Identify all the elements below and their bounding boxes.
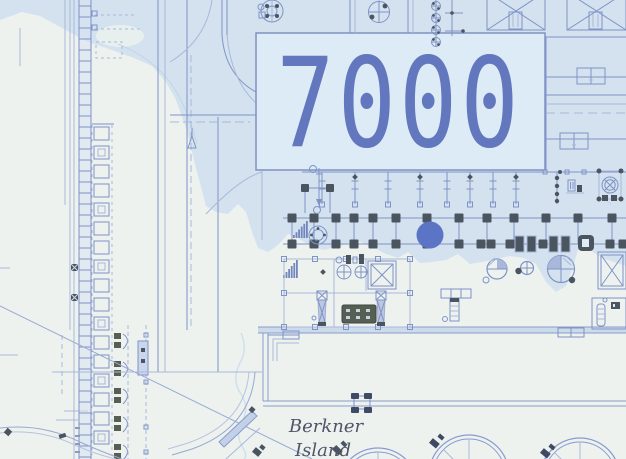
pipe-rack-post [510, 214, 519, 223]
pipe-rack-post [455, 240, 464, 249]
rack-unit [527, 236, 536, 252]
pipe-rack-post [350, 214, 359, 223]
flange-dot [437, 31, 440, 34]
pipe-rack-post [332, 240, 341, 249]
pipe-rack-post [455, 214, 464, 223]
flange-dot [437, 19, 440, 22]
pipe-rack-post [487, 240, 496, 249]
pipe-rack-post [392, 240, 401, 249]
rack-unit [561, 236, 570, 252]
pipe-rack-post [423, 214, 432, 223]
flange-dot [437, 43, 440, 46]
pipe-rack-post [477, 240, 486, 249]
pipe-rack-post [619, 240, 626, 249]
stair-bar [298, 229, 300, 238]
grid-label-box: 7000 [256, 32, 545, 176]
pipe-rack-post [483, 214, 492, 223]
loading-tower-icon [138, 341, 148, 375]
stair-bar [286, 272, 288, 278]
mooring-bollard [114, 444, 121, 450]
pipe-rack-post [606, 240, 615, 249]
rack-unit [549, 236, 558, 252]
pipe-rack-post [574, 214, 583, 223]
vessel-marker [417, 222, 444, 249]
mooring-bollard [114, 333, 121, 339]
place-name-line2: Island [294, 440, 351, 459]
pipe-rack-post [608, 214, 617, 223]
flange-dot [437, 7, 440, 10]
pipe-rack-post [539, 240, 548, 249]
flange-dot [432, 14, 435, 17]
stud-block [342, 305, 376, 323]
place-name-line1: Berkner [288, 416, 365, 437]
rack-unit [515, 236, 524, 252]
stair-bar [291, 266, 293, 278]
shoal-patch [96, 25, 144, 47]
pipe-rack-post [332, 214, 341, 223]
mooring-bollard [114, 397, 121, 403]
pipe-rack-post [392, 214, 401, 223]
pipe-rack-post [369, 214, 378, 223]
stair-bar [301, 227, 303, 238]
site-plan: 7000 [0, 0, 626, 459]
stair-bar [288, 269, 290, 278]
mooring-bollard [114, 342, 121, 348]
stair-bar [306, 221, 308, 238]
stair-bar [293, 263, 295, 278]
flange-dot [432, 2, 435, 5]
map-canvas[interactable]: 7000 [0, 0, 626, 459]
mooring-bollard [114, 425, 121, 431]
pipe-rack-post [369, 240, 378, 249]
grid-label: 7000 [276, 32, 522, 176]
pipe-rack-post [288, 240, 297, 249]
stair-bar [293, 235, 295, 238]
stair-bar [296, 232, 298, 238]
mooring-bollard [114, 416, 121, 422]
mooring-bollard [114, 388, 121, 394]
stair-bar [296, 260, 298, 278]
pipe-rack-post [288, 214, 297, 223]
pipe-rack-post [350, 240, 359, 249]
stair-bar [303, 224, 305, 238]
flange-dot [432, 26, 435, 29]
round-tank [548, 256, 576, 284]
mooring-bollard [114, 370, 121, 376]
pipe-rack-post [506, 240, 515, 249]
pipe-rack-post [310, 214, 319, 223]
flange-dot [432, 38, 435, 41]
pipe-rack-post [542, 214, 551, 223]
